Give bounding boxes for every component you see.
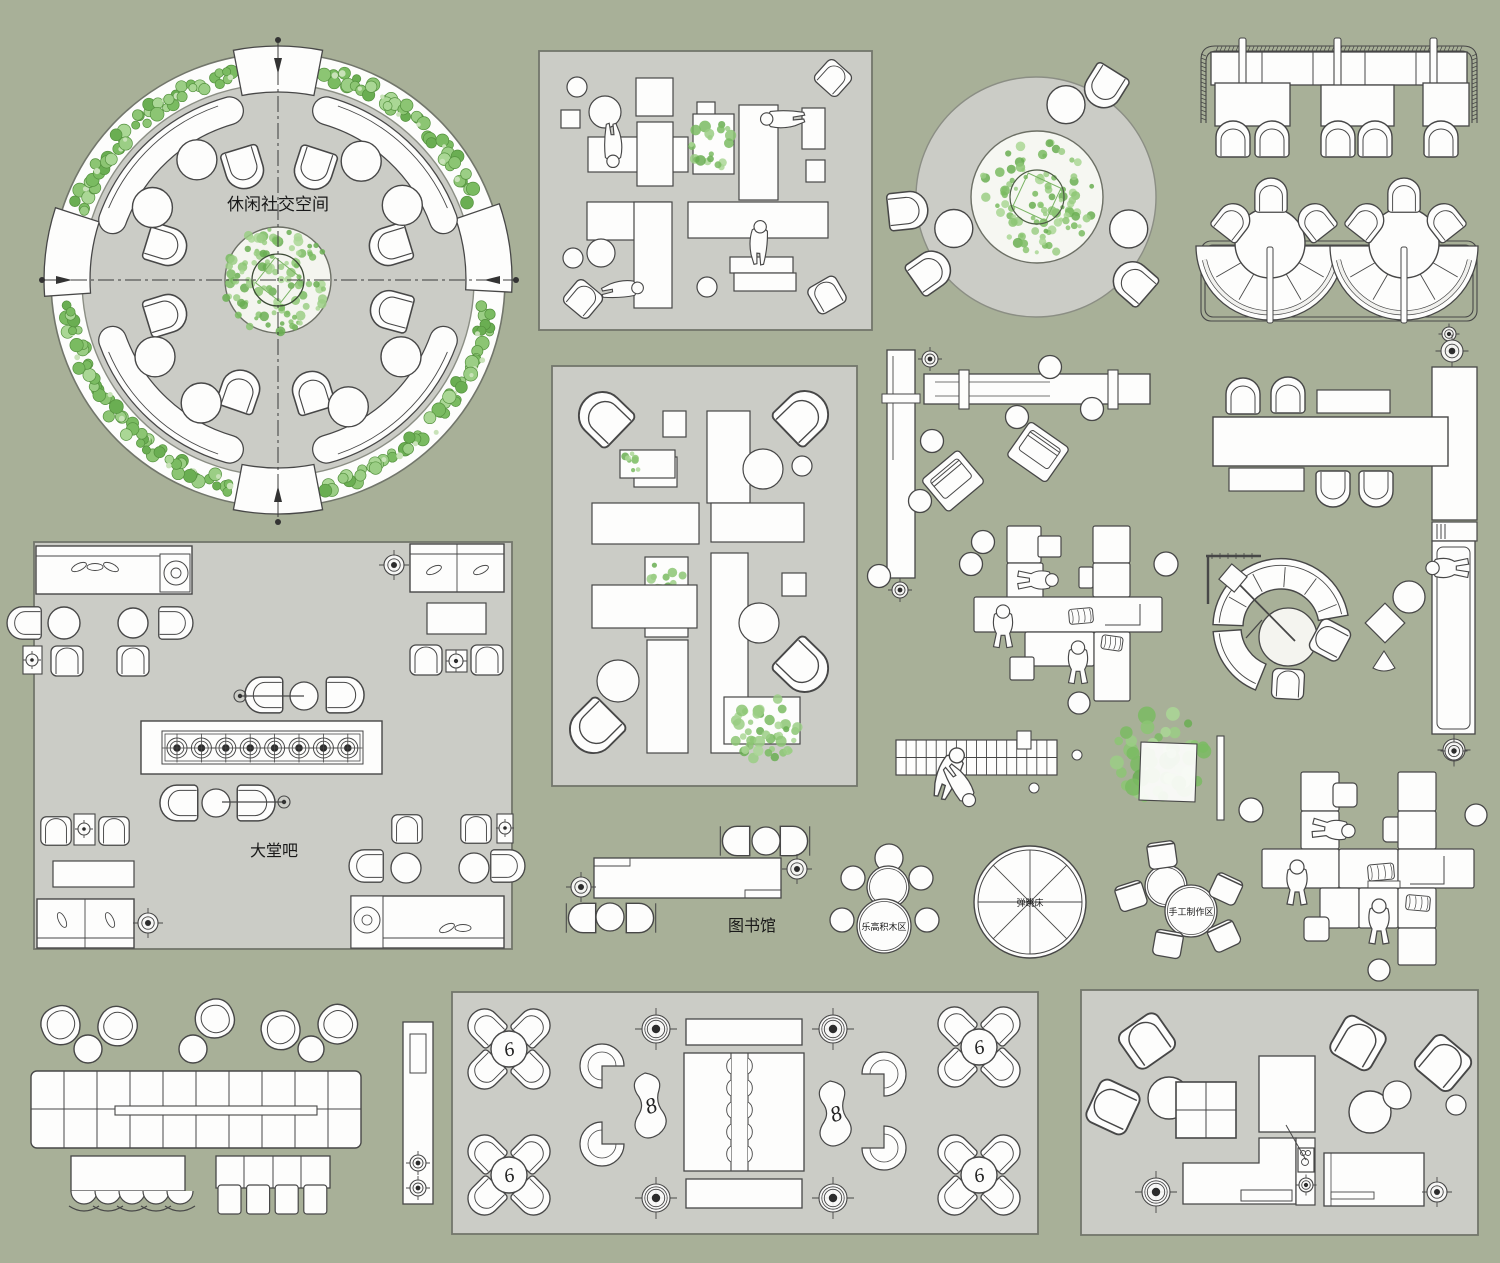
- svg-text:大堂吧: 大堂吧: [250, 842, 298, 860]
- svg-text:手工制作区: 手工制作区: [1168, 906, 1213, 917]
- svg-text:弹跳床: 弹跳床: [1016, 897, 1043, 908]
- svg-text:乐高积木区: 乐高积木区: [861, 921, 906, 932]
- svg-text:图书馆: 图书馆: [728, 917, 776, 935]
- svg-text:休闲社交空间: 休闲社交空间: [227, 195, 329, 214]
